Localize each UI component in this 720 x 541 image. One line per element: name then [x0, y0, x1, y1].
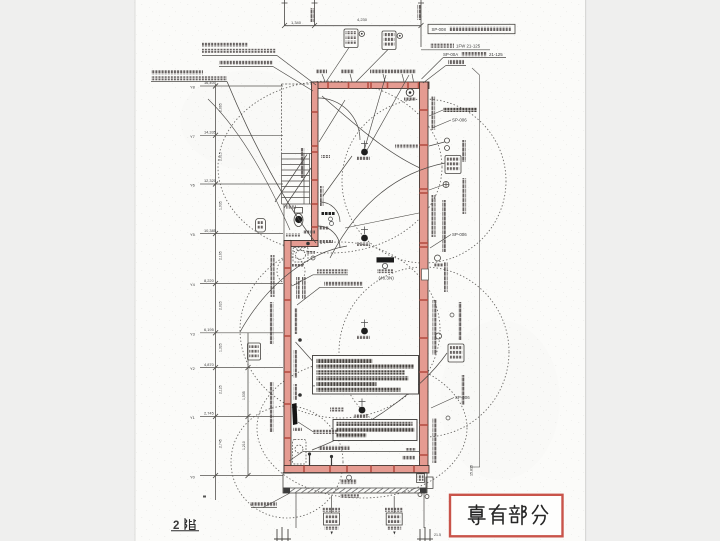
- svg-text:15,815: 15,815: [470, 465, 474, 476]
- svg-text:2,745: 2,745: [219, 439, 223, 448]
- svg-text:SP-006: SP-006: [452, 117, 467, 122]
- svg-text:SP-006: SP-006: [452, 232, 467, 237]
- svg-text:6,195: 6,195: [204, 327, 214, 332]
- svg-text:1,210: 1,210: [242, 441, 246, 450]
- svg-text:SP-00A: SP-00A: [443, 52, 458, 57]
- svg-text:2,025: 2,025: [219, 301, 223, 310]
- svg-text:1,325: 1,325: [219, 343, 223, 352]
- svg-text:2,745: 2,745: [204, 411, 214, 416]
- svg-text:1,935: 1,935: [219, 201, 223, 210]
- svg-text:2: 2: [173, 520, 179, 532]
- svg-text:14,335: 14,335: [204, 130, 216, 135]
- svg-text:8,220: 8,220: [204, 278, 215, 283]
- svg-text:Y3: Y3: [190, 331, 195, 336]
- svg-text:21-125: 21-125: [489, 52, 503, 57]
- svg-text:Y1: Y1: [190, 415, 195, 420]
- svg-text:(40.3N): (40.3N): [379, 275, 395, 280]
- svg-text:2,125: 2,125: [219, 385, 223, 394]
- svg-text:Y8: Y8: [190, 85, 195, 90]
- svg-text:1,535: 1,535: [242, 391, 246, 400]
- svg-text:12,320: 12,320: [204, 178, 217, 183]
- svg-text:21.5: 21.5: [434, 533, 441, 537]
- svg-text:Y2: Y2: [190, 366, 195, 371]
- svg-text:1FW 21-125: 1FW 21-125: [456, 44, 481, 49]
- svg-text:SP-006: SP-006: [455, 395, 470, 400]
- svg-text:Y7: Y7: [190, 134, 195, 139]
- svg-text:SP-008: SP-008: [432, 27, 447, 32]
- svg-text:4,870: 4,870: [204, 362, 215, 367]
- svg-text:1,340: 1,340: [291, 20, 302, 25]
- svg-text:Y5: Y5: [190, 232, 195, 237]
- svg-text:10,385: 10,385: [204, 228, 216, 233]
- svg-text:2,015: 2,015: [219, 152, 223, 161]
- svg-text:16,400: 16,400: [204, 80, 217, 85]
- svg-text:4,230: 4,230: [357, 17, 368, 22]
- svg-text:Y6: Y6: [190, 183, 195, 188]
- svg-text:2,165: 2,165: [219, 251, 223, 260]
- svg-text:Y0: Y0: [190, 474, 196, 479]
- svg-text:Y4: Y4: [190, 282, 196, 287]
